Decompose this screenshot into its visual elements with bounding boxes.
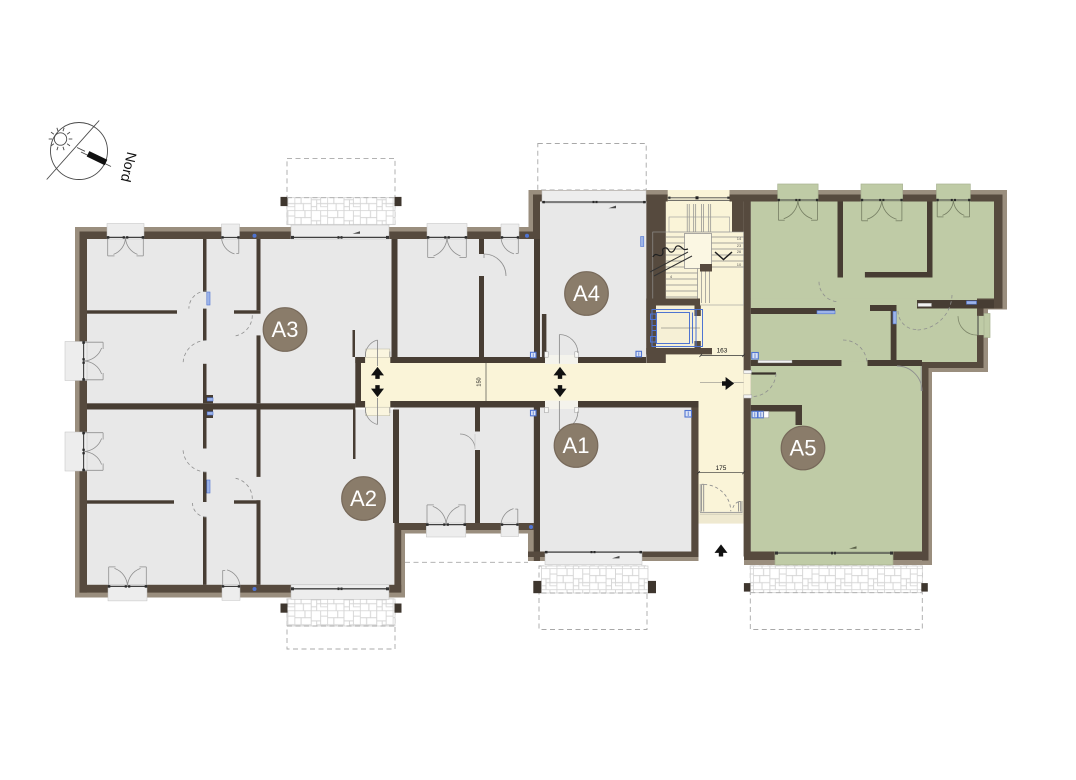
svg-text:26: 26 (737, 249, 742, 254)
svg-text:150: 150 (477, 377, 483, 386)
svg-text:10: 10 (737, 262, 742, 267)
svg-text:163: 163 (717, 348, 728, 355)
svg-text:A4: A4 (573, 281, 600, 306)
svg-text:A3: A3 (272, 317, 299, 342)
svg-text:14: 14 (737, 236, 742, 241)
svg-text:A1: A1 (563, 433, 590, 458)
svg-text:175: 175 (716, 465, 727, 472)
svg-text:A2: A2 (350, 486, 377, 511)
svg-text:23: 23 (737, 243, 742, 248)
svg-text:A5: A5 (790, 436, 817, 461)
